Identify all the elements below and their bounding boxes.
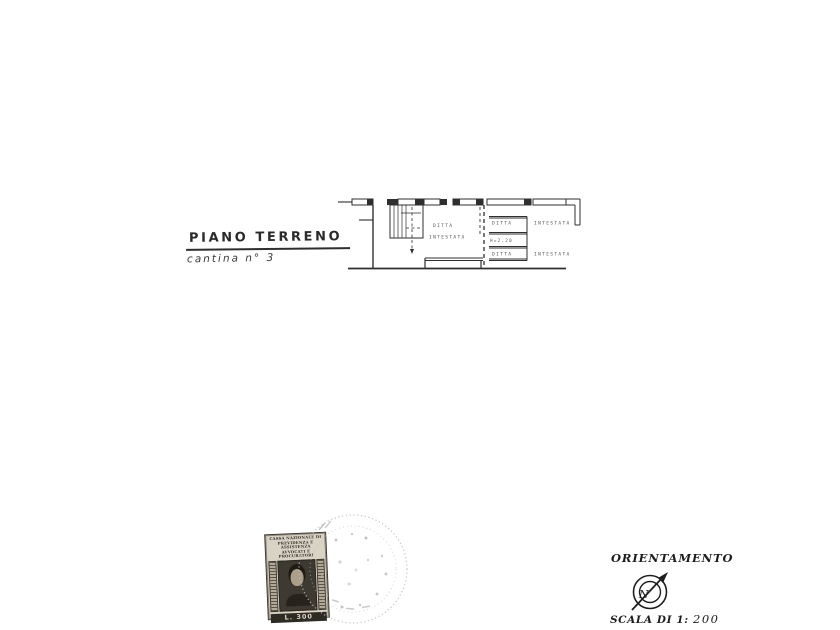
right-room-top-label-ditta: DITTA: [492, 221, 512, 227]
scanned-floor-plan-sheet: { "page": { "background": "#ffffff", "in…: [0, 0, 840, 630]
staircase: [390, 205, 423, 254]
title-block: PIANO TERRENO cantina n° 3: [186, 226, 350, 265]
compass-north-letter: N: [638, 588, 649, 601]
floor-plan: DITTA INTESTATA DITTA INTESTATA H=2.20 D…: [338, 194, 583, 276]
right-room-bottom-label-intestata: INTESTATA: [534, 252, 571, 258]
compass-icon: N: [627, 570, 673, 616]
round-ink-stamp: [294, 510, 412, 628]
orientation-title: ORIENTAMENTO: [611, 551, 733, 565]
main-room-label-line1: DITTA: [433, 223, 453, 229]
page-title: PIANO TERRENO: [186, 229, 350, 251]
round-stamp-inner-ring: [310, 526, 396, 612]
scale-value: 200: [693, 612, 719, 626]
main-room-label-line2: INTESTATA: [429, 235, 466, 241]
height-note-label: H=2.20: [490, 238, 513, 243]
partition-dashed-wall: [480, 205, 484, 269]
stair-arrow: [410, 249, 414, 254]
scale-prefix: SCALA DI 1:: [610, 614, 689, 626]
right-room-bottom-label-ditta: DITTA: [492, 252, 512, 258]
right-room-top-label-intestata: INTESTATA: [534, 221, 571, 227]
round-stamp-outer-ring: [299, 515, 407, 623]
page-subtitle: cantina n° 3: [187, 251, 350, 267]
scale-label: SCALA DI 1: 200: [610, 613, 719, 627]
main-room-lower-wall: [425, 258, 483, 269]
